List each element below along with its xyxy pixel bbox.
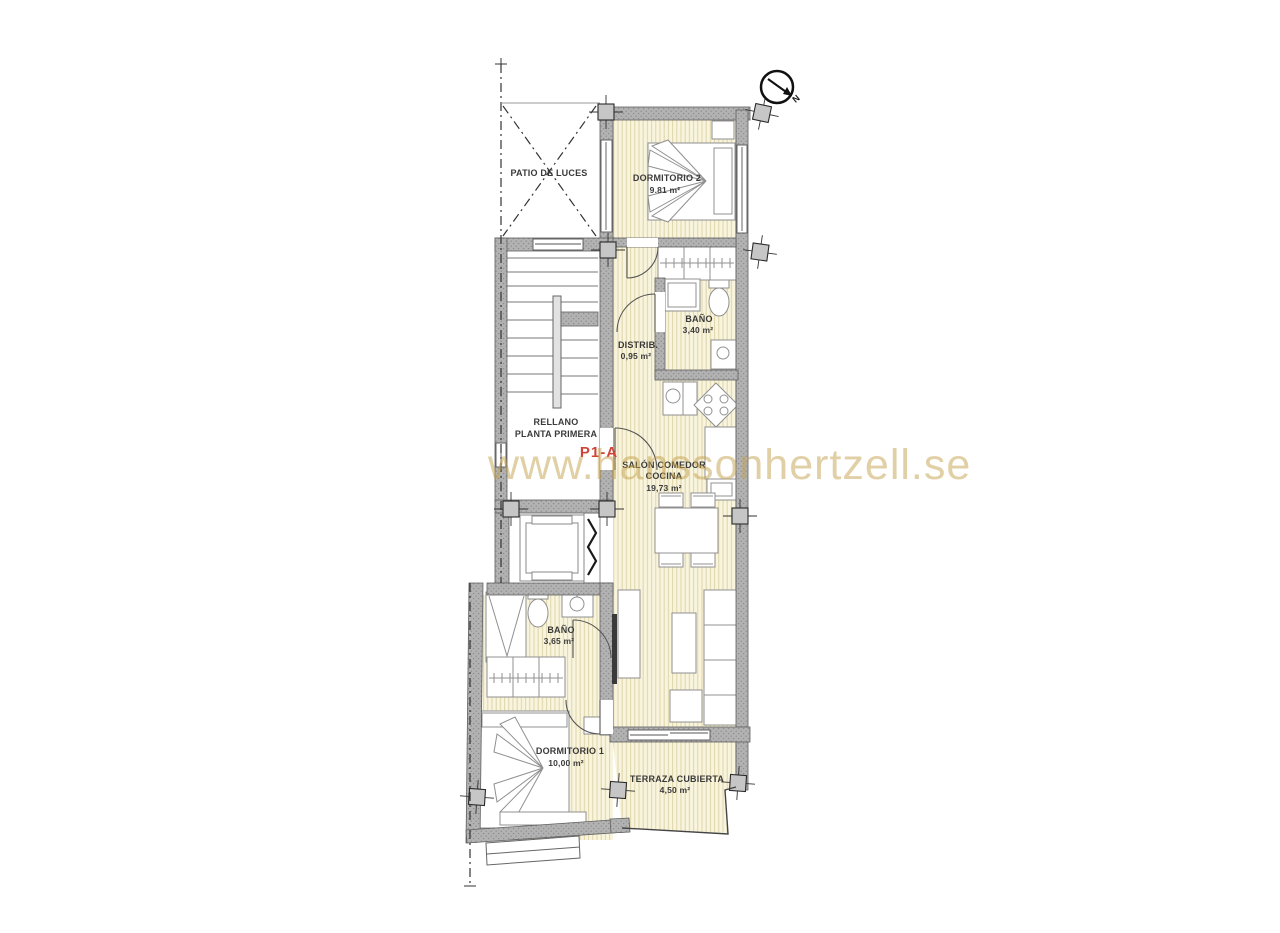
elevator xyxy=(520,513,600,583)
label-dormitorio2-area: 9.81 m² xyxy=(650,185,681,195)
label-dormitorio2: DORMITORIO 2 xyxy=(633,173,701,183)
label-bano2: BAÑO xyxy=(685,314,712,324)
label-rellano-line2: PLANTA PRIMERA xyxy=(515,429,598,439)
label-dormitorio1: DORMITORIO 1 xyxy=(536,746,604,756)
label-distribuidor-area: 0,95 m² xyxy=(621,351,652,361)
label-distribuidor: DISTRIB. xyxy=(618,340,658,350)
label-bano1: BAÑO xyxy=(547,625,574,635)
floorplan-svg: N PATIO DE LUCES DORMITORIO 2 9.81 m² BA… xyxy=(0,0,1280,933)
coffee-table xyxy=(672,613,696,673)
label-terraza-area: 4,50 m² xyxy=(660,785,691,795)
wardrobe-dorm2 xyxy=(658,245,736,280)
north-compass: N xyxy=(761,71,802,105)
label-bano1-area: 3,65 m² xyxy=(544,636,575,646)
label-terraza: TERRAZA CUBIERTA xyxy=(630,774,724,784)
north-arrow-label: N xyxy=(790,93,801,105)
label-dormitorio1-area: 10,00 m² xyxy=(548,758,584,768)
wardrobe-dorm1 xyxy=(487,657,565,697)
tv-screen xyxy=(612,614,617,684)
label-bano2-area: 3,40 m² xyxy=(683,325,714,335)
compass-circle-icon xyxy=(761,71,793,103)
watermark: www.hanssonhertzell.se xyxy=(487,441,971,489)
tv-bench xyxy=(618,590,640,678)
label-patio: PATIO DE LUCES xyxy=(511,168,588,178)
floorplan-canvas: N PATIO DE LUCES DORMITORIO 2 9.81 m² BA… xyxy=(0,0,1280,933)
label-rellano-line1: RELLANO xyxy=(534,417,579,427)
